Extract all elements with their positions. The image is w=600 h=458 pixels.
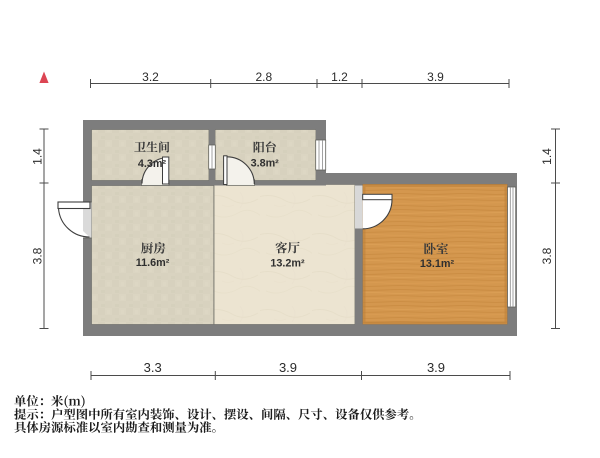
svg-text:3.3: 3.3 <box>144 360 162 375</box>
svg-text:11.6m²: 11.6m² <box>136 257 170 269</box>
svg-text:1.4: 1.4 <box>31 148 45 165</box>
svg-text:3.9: 3.9 <box>427 360 445 375</box>
svg-text:3.9: 3.9 <box>279 360 297 375</box>
svg-text:3.8m²: 3.8m² <box>251 158 280 170</box>
svg-text:2.8: 2.8 <box>255 70 272 84</box>
svg-text:3.8: 3.8 <box>31 247 45 264</box>
svg-text:1.2: 1.2 <box>331 70 348 84</box>
svg-text:3.2: 3.2 <box>142 70 159 84</box>
svg-text:1.4: 1.4 <box>540 148 554 165</box>
svg-text:3.8: 3.8 <box>540 247 554 264</box>
svg-text:13.1m²: 13.1m² <box>420 258 455 270</box>
svg-text:3.9: 3.9 <box>427 70 444 84</box>
svg-text:4.3m²: 4.3m² <box>138 158 167 170</box>
svg-text:13.2m²: 13.2m² <box>270 258 305 270</box>
